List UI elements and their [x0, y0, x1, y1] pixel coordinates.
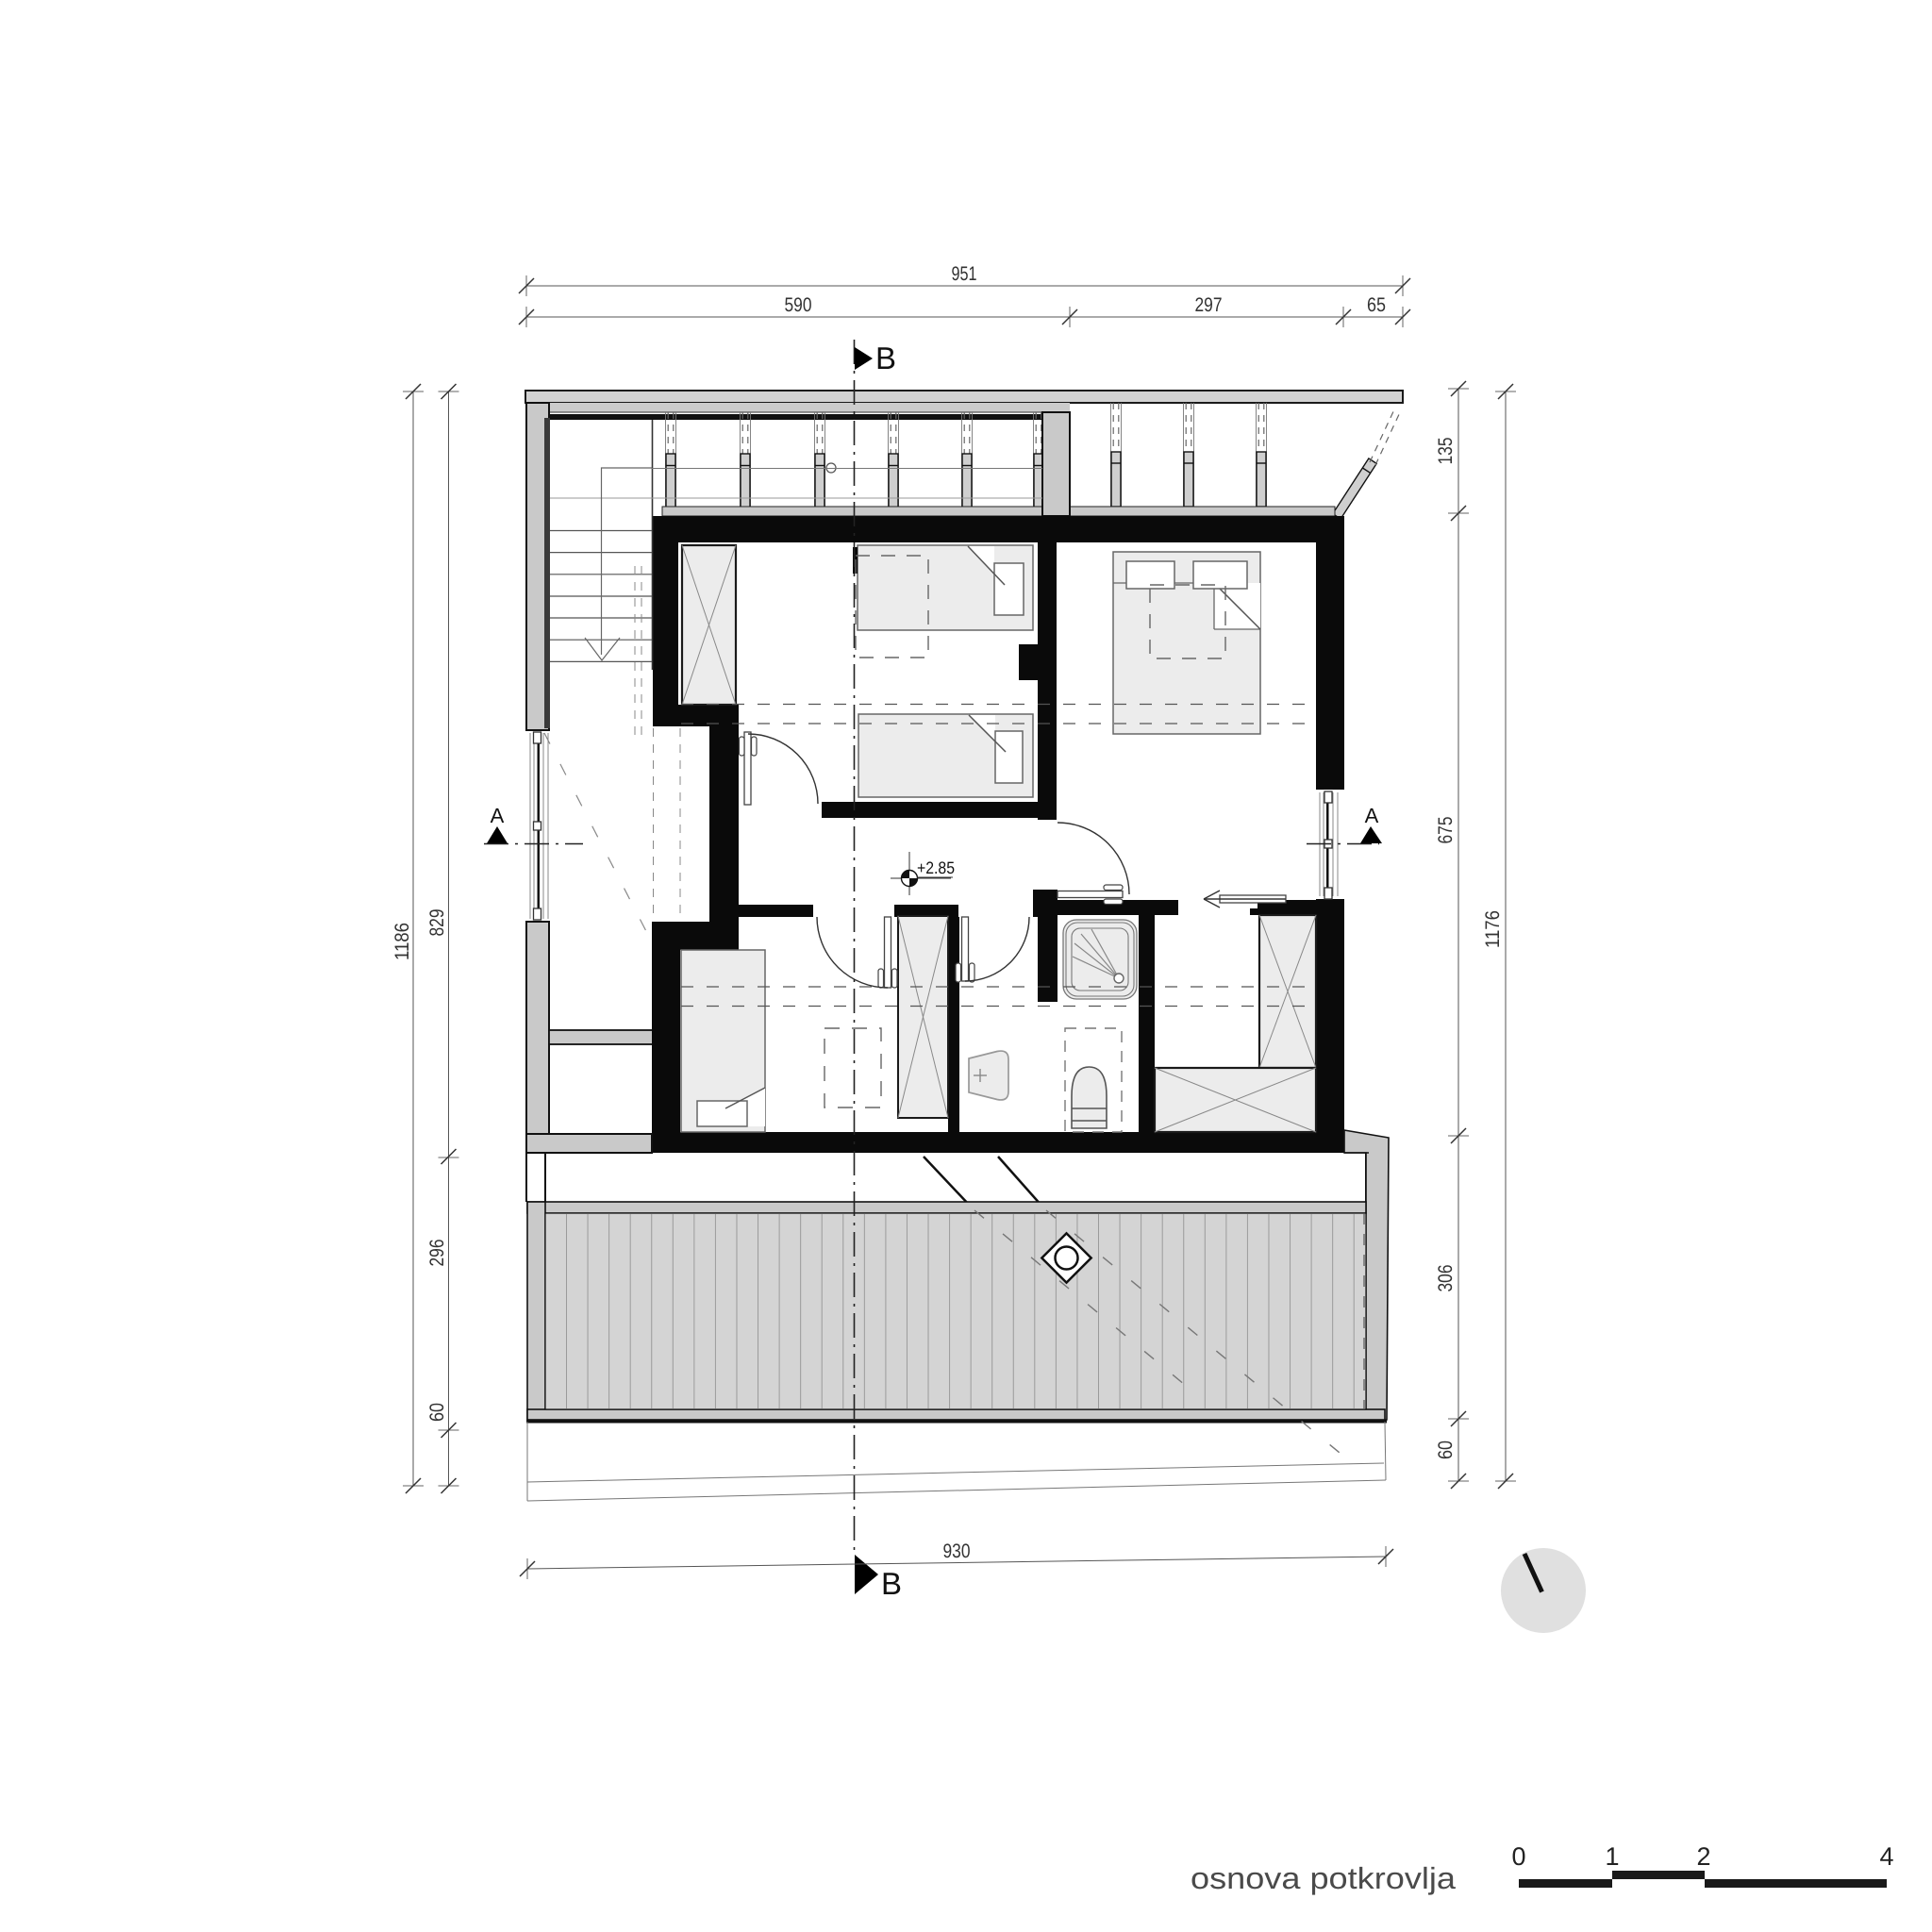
svg-text:829: 829 [426, 909, 448, 937]
svg-text:A: A [1365, 804, 1379, 827]
svg-text:0: 0 [1511, 1842, 1525, 1871]
svg-text:930: 930 [943, 1541, 971, 1562]
svg-text:306: 306 [1435, 1265, 1457, 1292]
svg-text:60: 60 [1435, 1441, 1457, 1459]
svg-text:B: B [881, 1566, 902, 1601]
svg-text:296: 296 [426, 1240, 448, 1267]
svg-text:A: A [491, 804, 505, 827]
svg-text:951: 951 [952, 263, 977, 285]
svg-text:2: 2 [1696, 1842, 1710, 1871]
svg-text:1: 1 [1605, 1842, 1619, 1871]
svg-text:675: 675 [1435, 817, 1457, 844]
svg-text:+2.85: +2.85 [917, 858, 955, 877]
svg-text:590: 590 [785, 294, 812, 316]
svg-text:65: 65 [1367, 294, 1386, 316]
svg-text:60: 60 [426, 1403, 448, 1422]
svg-text:osnova potkrovlja: osnova potkrovlja [1191, 1861, 1456, 1895]
svg-text:1176: 1176 [1482, 910, 1504, 948]
svg-text:4: 4 [1879, 1842, 1893, 1871]
svg-text:297: 297 [1195, 294, 1223, 316]
svg-text:B: B [875, 341, 896, 375]
svg-text:1186: 1186 [391, 923, 413, 960]
svg-text:135: 135 [1435, 438, 1457, 465]
